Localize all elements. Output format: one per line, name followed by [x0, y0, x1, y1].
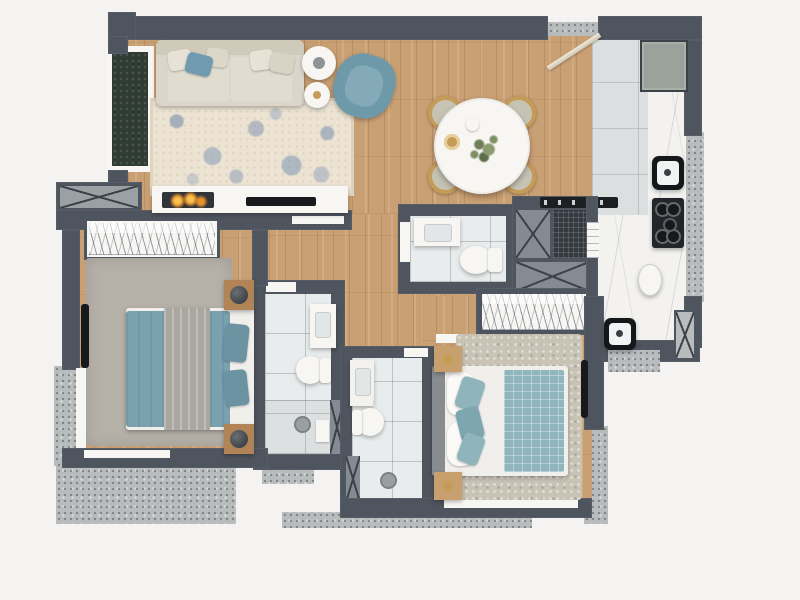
ledge-bottom-left — [56, 462, 236, 524]
bedroom1-door — [292, 216, 344, 224]
table-plant — [460, 122, 508, 172]
kitchen-bottom-window-ledge — [608, 350, 660, 372]
bedroom1-wardrobe-hangers — [89, 223, 215, 255]
bedroom2-bottom-window — [444, 500, 578, 508]
fireplace — [162, 192, 214, 208]
bathroom3-shower-drain — [380, 472, 397, 489]
kitchen-oval-basin — [638, 264, 662, 296]
bedroom1-pillow-2 — [222, 369, 250, 407]
bedroom1-lamp-bottom — [230, 430, 248, 448]
side-table-large — [302, 46, 336, 80]
sofa-pillow-cream-4 — [268, 51, 295, 75]
bedroom2-wall-tv — [581, 360, 588, 418]
side-table-decor — [313, 57, 325, 69]
bathroom3-vanity-basin — [355, 368, 371, 396]
bathroom2-toilet-tank — [320, 358, 331, 383]
bathroom1-vanity-basin — [424, 224, 452, 242]
sofa — [156, 40, 304, 106]
prep-sink-faucet — [616, 330, 623, 337]
bedroom1-wardrobe — [84, 218, 220, 260]
bathroom2-shower-shelf — [316, 420, 329, 442]
side-table-gold-item — [313, 91, 321, 99]
side-table-small — [304, 82, 330, 108]
bedroom2-lamp-top — [443, 354, 453, 364]
wall-top-main — [112, 16, 548, 40]
bedroom2-nightstand-bottom — [434, 472, 462, 500]
table-jug — [466, 118, 479, 131]
bedroom1-bottom-window — [84, 450, 170, 458]
bedroom1-pillow-1 — [222, 323, 250, 363]
living-rug — [150, 98, 354, 196]
wall-top-kitchen — [598, 16, 702, 40]
bedroom2-bed — [432, 366, 568, 476]
media-console — [152, 186, 348, 213]
armchair-cushion — [341, 61, 388, 110]
bedroom2-nightstand-top — [434, 346, 462, 372]
bedroom1-nightstand-bottom — [224, 424, 254, 454]
bedroom1-wall-tv — [81, 304, 89, 368]
bathroom3-toilet-tank — [352, 410, 362, 435]
bathroom2-shower-drain — [294, 416, 311, 433]
kitchen-service-door — [674, 310, 696, 360]
wall-bedroom1-right-upper — [252, 230, 268, 286]
bedroom2-lamp-bottom — [443, 481, 453, 491]
bathroom1-door — [400, 222, 410, 262]
bedroom1-nightstand-top — [224, 280, 254, 310]
bathroom2-door — [266, 282, 296, 292]
prep-sink — [604, 318, 636, 350]
cooktop-center-burner — [663, 218, 677, 232]
bathroom2-vanity-basin — [315, 312, 331, 338]
burner-2 — [666, 202, 681, 217]
wall-living-left-upper — [108, 36, 128, 54]
living-window-glass — [112, 52, 148, 166]
shaft-mesh — [553, 210, 589, 258]
bedroom2-headboard — [432, 366, 445, 476]
tv-console — [246, 197, 316, 206]
floor-plan — [0, 0, 800, 600]
bedroom1-gray-throw — [164, 308, 210, 430]
appliance-strip — [540, 197, 618, 208]
entry-shaft-x — [60, 186, 138, 208]
bedroom1-bed — [126, 308, 254, 430]
wall-bedroom1-left — [62, 230, 80, 370]
ledge-kitchen-right — [686, 132, 704, 302]
refrigerator — [640, 40, 688, 92]
bedroom2-teal-quilt — [504, 370, 564, 472]
kitchen-shelf-rack — [587, 222, 599, 258]
bathroom3-door — [404, 348, 428, 357]
bathroom3-glass-door — [346, 456, 360, 502]
bedroom1-lamp-top — [230, 286, 248, 304]
bathroom1-toilet-tank — [488, 248, 502, 272]
cooktop — [652, 198, 684, 248]
shaft-x-1 — [516, 210, 550, 258]
shaft-x-2 — [516, 262, 589, 291]
table-gold-plate — [444, 134, 460, 150]
kitchen-sink-faucet — [664, 169, 671, 176]
kitchen-sink — [652, 156, 684, 190]
bedroom2-wardrobe — [482, 294, 586, 330]
